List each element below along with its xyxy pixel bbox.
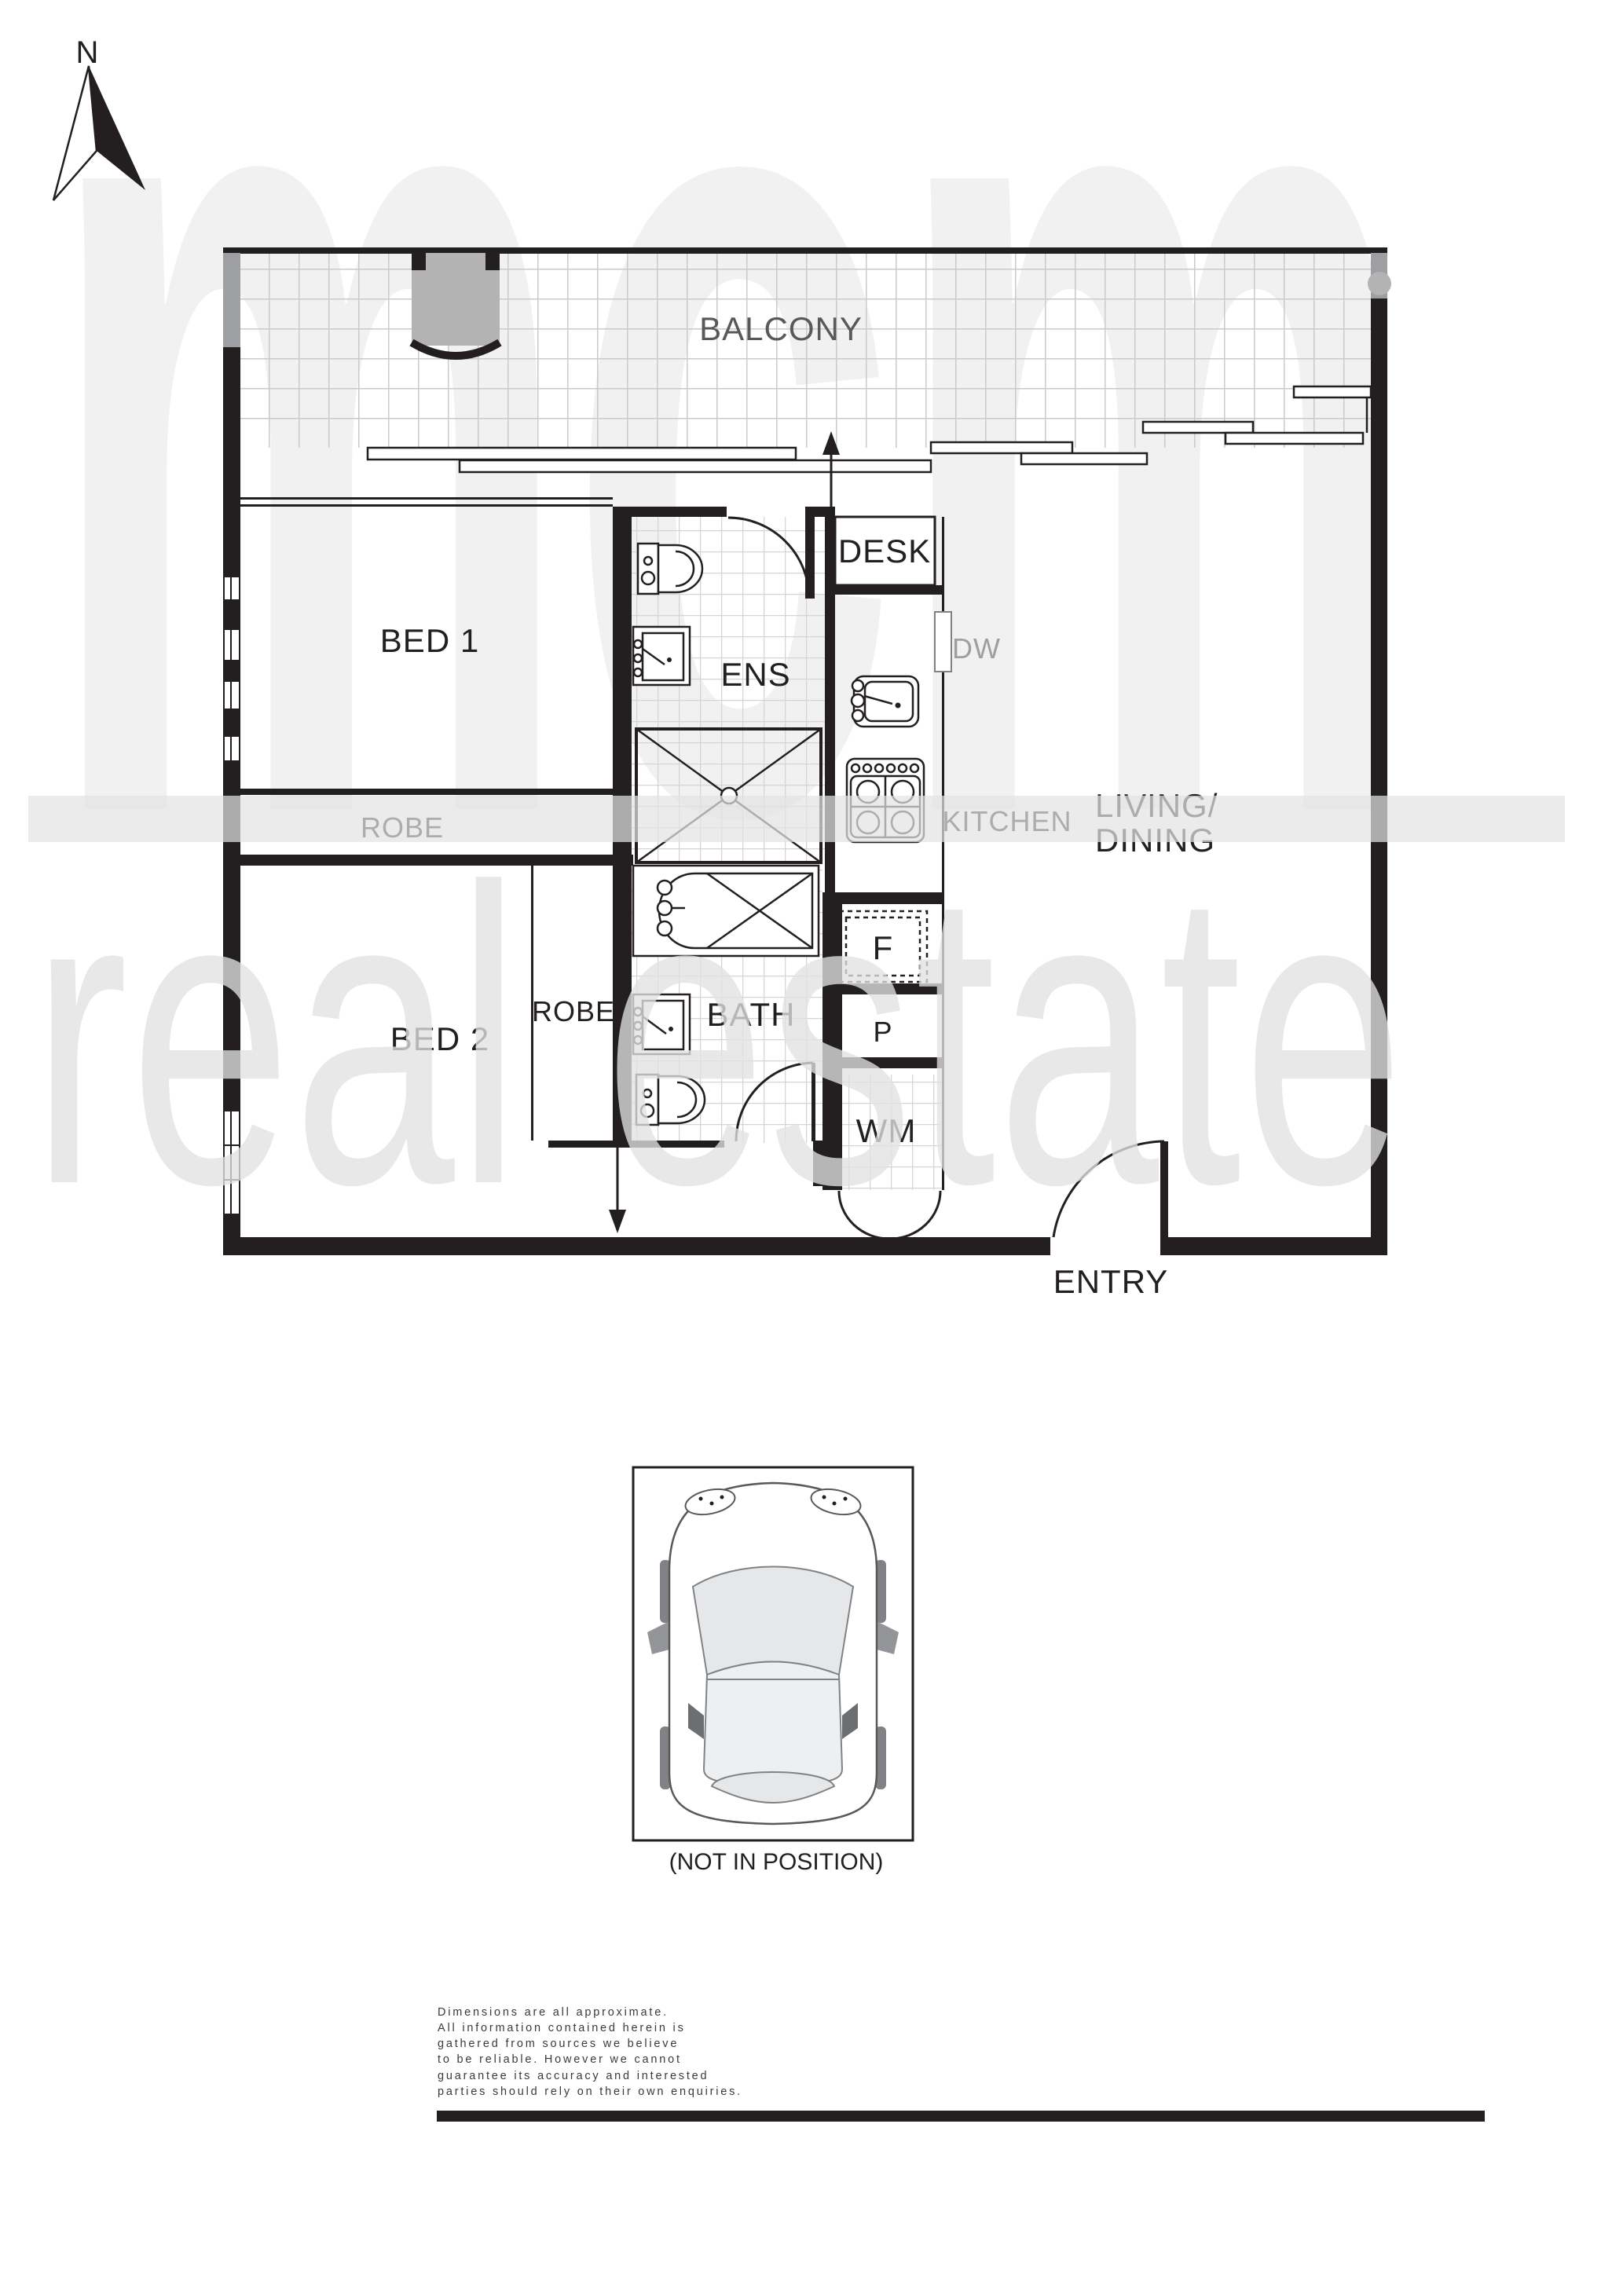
car-space: (NOT IN POSITION)	[633, 1467, 913, 1875]
svg-text:real estate: real estate	[31, 801, 1406, 1273]
left-wall-railing	[223, 253, 240, 347]
disclaimer-block: Dimensions are all approximate. All info…	[438, 2006, 742, 2098]
bed1-robe-wall	[240, 789, 613, 795]
balcony-column	[412, 253, 500, 356]
disclaimer-line: Dimensions are all approximate.	[438, 2006, 669, 2019]
disclaimer-line: guarantee its accuracy and interested	[438, 2070, 709, 2082]
ensuite-vanity	[633, 627, 690, 685]
bed1-window-line-outer	[240, 497, 613, 500]
balcony-top-wall	[223, 247, 1387, 254]
kitchen-sink	[852, 676, 918, 727]
north-label: N	[76, 35, 99, 70]
bed1-label: BED 1	[380, 622, 479, 659]
ensuite-toilet	[638, 544, 702, 594]
desk-label: DESK	[838, 533, 931, 569]
dishwasher-label: DW	[952, 632, 1001, 665]
floor-plan-canvas: mcm	[0, 0, 1623, 2296]
ens-top-wall	[632, 507, 727, 517]
disclaimer-line: All information contained herein is	[438, 2022, 686, 2034]
disclaimer-line: to be reliable. However we cannot	[438, 2053, 682, 2066]
disclaimer-line: gathered from sources we believe	[438, 2038, 679, 2050]
balcony-tiles	[240, 253, 1371, 448]
floor-plan-page: mcm	[0, 0, 1623, 2296]
balcony-label: BALCONY	[699, 310, 863, 347]
car-top-view	[647, 1483, 899, 1824]
car-caption: (NOT IN POSITION)	[669, 1849, 884, 1875]
bed1-window-line-inner	[240, 504, 613, 507]
footer-bar	[437, 2111, 1485, 2122]
desk-bottom-wall	[825, 585, 943, 595]
ens-label: ENS	[720, 656, 790, 693]
dishwasher	[935, 612, 951, 672]
disclaimer-line: parties should rely on their own enquiri…	[438, 2085, 742, 2098]
watermark-logo-bottom: real estate	[31, 801, 1406, 1273]
balcony-corner-column	[1368, 272, 1391, 295]
